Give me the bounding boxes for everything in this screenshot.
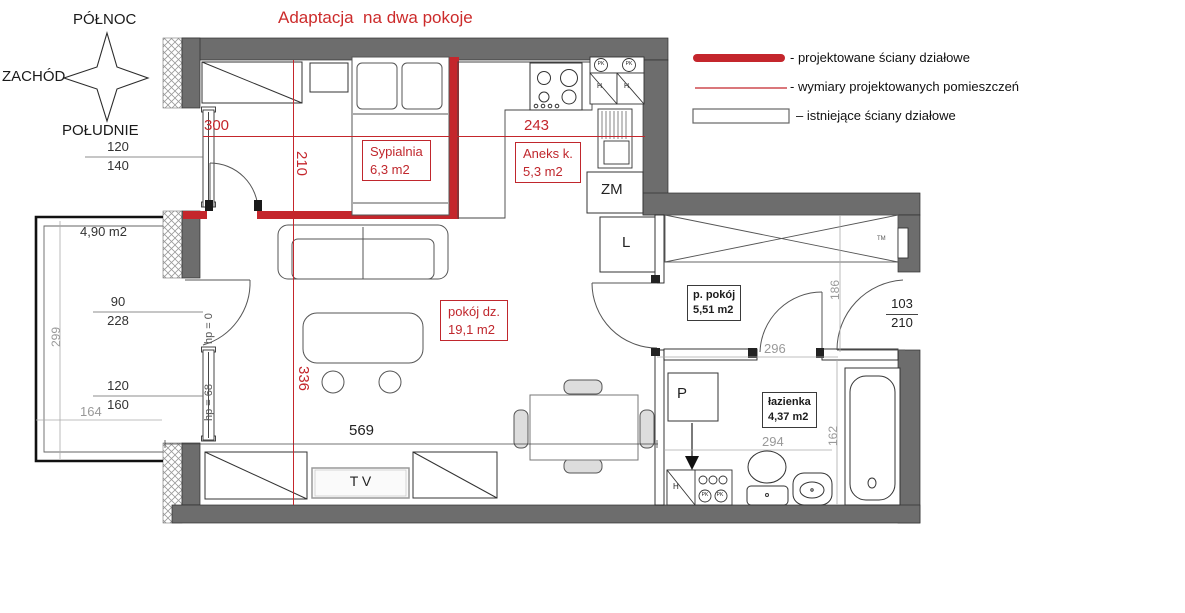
coffee-table [303, 313, 423, 363]
bedroom-door-swing [210, 163, 258, 211]
floor-plan-canvas: Adaptacja na dwa pokoje PÓŁNOC ZACHÓD PO… [0, 0, 1185, 613]
dim-160-height: 160 [96, 398, 140, 412]
compass-west-label: ZACHÓD [2, 69, 65, 85]
bathtub [845, 368, 900, 505]
dining-table-with-chairs [514, 380, 654, 473]
dim-103-width: 103 [886, 297, 918, 311]
dim-120b-width: 120 [96, 379, 140, 393]
sink-h-label: H [597, 83, 602, 90]
hall-door-swing [592, 283, 657, 348]
pk-riser-label: PK [700, 493, 710, 498]
room-label-hall: p. pokój 5,51 m2 [687, 285, 741, 321]
pk-riser-label: PK [715, 493, 725, 498]
room-name: łazienka [768, 395, 811, 410]
dim-299: 299 [50, 327, 63, 347]
room-label-bathroom: łazienka 4,37 m2 [762, 392, 817, 428]
hall-wardrobe [665, 215, 908, 262]
room-label-bedroom: Sypialnia 6,3 m2 [362, 140, 431, 181]
page-title: Adaptacja na dwa pokoje [278, 9, 473, 27]
tm-label: TM [877, 236, 886, 242]
drain-arrow-icon [685, 423, 699, 470]
room-area: 5,3 m2 [523, 163, 573, 181]
fridge-label: L [622, 235, 630, 251]
dim-210: 210 [293, 151, 309, 176]
toilet [747, 451, 788, 505]
dim-162: 162 [827, 426, 840, 446]
legend-projected-walls-label: - projektowane ściany działowe [790, 51, 970, 65]
washbasin [793, 473, 832, 505]
dim-90-width: 90 [96, 295, 140, 309]
dim-243: 243 [524, 118, 549, 134]
pouf [322, 371, 344, 393]
dim-300: 300 [204, 118, 229, 134]
dim-210-entry-height: 210 [886, 316, 918, 330]
room-name: Sypialnia [370, 143, 423, 161]
room-name: Aneks k. [523, 145, 573, 163]
parapet-hp68-label: hp = 68 [204, 384, 216, 421]
room-label-living: pokój dz. 19,1 m2 [440, 300, 508, 341]
dim-296: 296 [764, 342, 786, 356]
dim-294: 294 [762, 435, 784, 449]
pk-riser-label: PK [624, 62, 634, 67]
legend-projected-dims-label: - wymiary projektowanych pomieszczeń [790, 80, 1019, 94]
dim-228-height: 228 [96, 314, 140, 328]
washing-machine-box [668, 373, 718, 421]
insulated-wall-segments [163, 38, 182, 523]
dim-336: 336 [295, 366, 311, 391]
legend-existing-wall-symbol [693, 109, 789, 123]
room-area: 4,37 m2 [768, 410, 811, 425]
washer-label: P [677, 386, 687, 402]
room-name: p. pokój [693, 288, 735, 303]
room-label-kitchenette: Aneks k. 5,3 m2 [515, 142, 581, 183]
living-wardrobe-right [413, 452, 497, 498]
legend-symbols [693, 54, 789, 123]
room-area: 19,1 m2 [448, 321, 500, 339]
dim-569: 569 [349, 423, 374, 439]
compass-star-icon [64, 33, 148, 121]
kitchen-tall-unit [598, 109, 632, 168]
cooktop [530, 63, 582, 110]
dim-186: 186 [829, 280, 842, 300]
dim-164: 164 [80, 405, 102, 419]
dim-140-height: 140 [96, 159, 140, 173]
dim-120-width: 120 [96, 140, 140, 154]
pouf [379, 371, 401, 393]
sofa [278, 225, 448, 279]
legend-thick-red-wall-symbol [693, 54, 785, 62]
room-area: 5,51 m2 [693, 303, 735, 318]
living-wardrobe-left [205, 452, 307, 499]
room-area: 6,3 m2 [370, 161, 423, 179]
legend-existing-walls-label: – istniejące ściany działowe [796, 109, 956, 123]
sink-h-label: H [624, 83, 629, 90]
bedroom-wardrobe [202, 62, 302, 103]
compass-north-label: PÓŁNOC [73, 12, 136, 28]
tv-label: T V [312, 474, 409, 489]
parapet-hp0-label: hp = 0 [204, 313, 216, 344]
room-name: pokój dz. [448, 303, 500, 321]
balcony-area-label: 4,90 m2 [80, 225, 127, 239]
pk-riser-label: PK [596, 62, 606, 67]
nightstand [310, 63, 348, 92]
compass-south-label: POŁUDNIE [62, 123, 139, 139]
sink-h-label: H [673, 483, 679, 491]
dishwasher-label: ZM [601, 182, 623, 198]
